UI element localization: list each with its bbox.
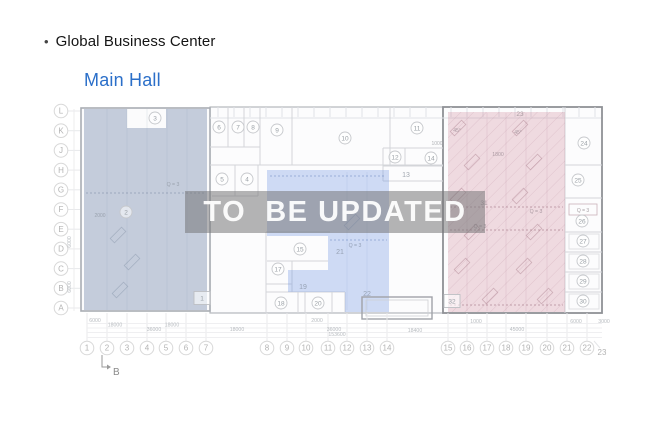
plan-label: 19 bbox=[299, 284, 307, 291]
grid-col-label: 21 bbox=[563, 344, 572, 353]
room-label: 18 bbox=[277, 300, 285, 307]
room-label: 6 bbox=[217, 124, 221, 131]
section-marker: B bbox=[102, 355, 120, 378]
grid-row-label: A bbox=[58, 304, 64, 313]
grid-col-label: 14 bbox=[383, 344, 392, 353]
dim-label: 18000 bbox=[165, 323, 180, 329]
grid-col-label: 2 bbox=[105, 344, 110, 353]
grid-col-label: 19 bbox=[522, 344, 531, 353]
grid-col-label: 3 bbox=[125, 344, 130, 353]
room-label: 30 bbox=[579, 298, 587, 305]
dim-label-vertical: 6000 bbox=[67, 281, 73, 293]
grid-col-label: 5 bbox=[164, 344, 169, 353]
grid-col-label-23: 23 bbox=[598, 348, 607, 357]
plan-label: 2000 bbox=[94, 213, 105, 219]
grid-row-label: K bbox=[58, 126, 64, 135]
room-label: 14 bbox=[427, 155, 435, 162]
page: • Global Business Center Main Hall bbox=[0, 0, 660, 440]
room-label: 32 bbox=[448, 298, 456, 305]
plan-label: 13 bbox=[402, 172, 410, 179]
plan-label: Q = 3 bbox=[349, 243, 362, 249]
plan-label: 45° bbox=[514, 130, 522, 136]
room-label: 28 bbox=[579, 258, 587, 265]
room-label: 25 bbox=[574, 177, 582, 184]
dim-label: 18400 bbox=[408, 328, 423, 334]
watermark-band: TO BE UPDATED bbox=[185, 191, 485, 233]
room-label: 1 bbox=[200, 295, 204, 302]
grid-row-label: F bbox=[59, 205, 64, 214]
watermark-text: TO BE UPDATED bbox=[203, 198, 466, 227]
grid-col-label: 10 bbox=[302, 344, 311, 353]
grid-row-label: G bbox=[58, 186, 64, 195]
grid-row-label: H bbox=[58, 166, 64, 175]
grid-col-label: 18 bbox=[502, 344, 511, 353]
dim-label: 3000 bbox=[598, 319, 610, 325]
grid-row-label: E bbox=[58, 225, 63, 234]
dim-label: 45000 bbox=[510, 327, 525, 333]
svg-text:B: B bbox=[113, 367, 120, 378]
room-label: 7 bbox=[236, 124, 240, 131]
grid-col-label: 9 bbox=[285, 344, 290, 353]
dim-label: 1000 bbox=[470, 319, 482, 325]
dim-label: 153600 bbox=[328, 332, 345, 338]
plan-label: 1800 bbox=[492, 152, 504, 158]
dim-label: 36000 bbox=[147, 327, 162, 333]
grid-col-label: 20 bbox=[543, 344, 552, 353]
room-label: 17 bbox=[274, 266, 282, 273]
room-label: 15 bbox=[296, 246, 304, 253]
room-label: 9 bbox=[275, 127, 279, 134]
grid-col-label: 12 bbox=[343, 344, 352, 353]
plan-label: Q = 3 bbox=[530, 209, 543, 215]
room-label: 20 bbox=[314, 300, 322, 307]
grid-col-label: 15 bbox=[444, 344, 453, 353]
room-label: 2 bbox=[124, 209, 128, 216]
room-label: 12 bbox=[391, 154, 399, 161]
grid-row-label: J bbox=[59, 146, 63, 155]
room-label: 3 bbox=[153, 115, 157, 122]
grid-row-label: C bbox=[58, 264, 64, 273]
dim-label-vertical: 6000 bbox=[67, 236, 73, 248]
grid-col-label: 11 bbox=[324, 344, 333, 353]
plan-label: 22 bbox=[363, 291, 371, 298]
grid-col-label: 22 bbox=[583, 344, 592, 353]
room-label: 24 bbox=[580, 140, 588, 147]
room-label: 11 bbox=[414, 125, 421, 132]
plan-label: 45° bbox=[453, 128, 461, 134]
grid-row-label: D bbox=[58, 245, 64, 254]
grid-col-label: 8 bbox=[265, 344, 270, 353]
grid-row-label: B bbox=[58, 284, 63, 293]
grid-col-label: 1 bbox=[85, 344, 90, 353]
plan-label: 21 bbox=[336, 249, 344, 256]
room-label: 5 bbox=[220, 176, 224, 183]
plan-label: 23 bbox=[516, 111, 524, 118]
room-label: 27 bbox=[579, 238, 587, 245]
dim-label: 18000 bbox=[108, 323, 123, 329]
plan-label: Q = 3 bbox=[167, 182, 180, 188]
grid-col-label: 4 bbox=[145, 344, 150, 353]
room-label: 8 bbox=[251, 124, 255, 131]
room-label: 26 bbox=[578, 218, 586, 225]
room-label: 4 bbox=[245, 176, 249, 183]
grid-row-label: L bbox=[59, 107, 64, 116]
plan-label: 1000 bbox=[431, 141, 442, 147]
room-label: 10 bbox=[341, 135, 349, 142]
dim-label: 6000 bbox=[570, 319, 582, 325]
dim-label: 2000 bbox=[311, 318, 323, 324]
dim-label: 18000 bbox=[230, 327, 245, 333]
grid-col-label: 17 bbox=[483, 344, 492, 353]
dim-label: 6000 bbox=[89, 318, 101, 324]
grid-col-label: 6 bbox=[184, 344, 189, 353]
grid-col-label: 16 bbox=[463, 344, 472, 353]
col23-leader bbox=[594, 341, 600, 348]
grid-col-label: 13 bbox=[363, 344, 372, 353]
grid-col-label: 7 bbox=[204, 344, 209, 353]
plan-label: Q = 3 bbox=[577, 208, 590, 214]
room-label: 29 bbox=[579, 278, 587, 285]
